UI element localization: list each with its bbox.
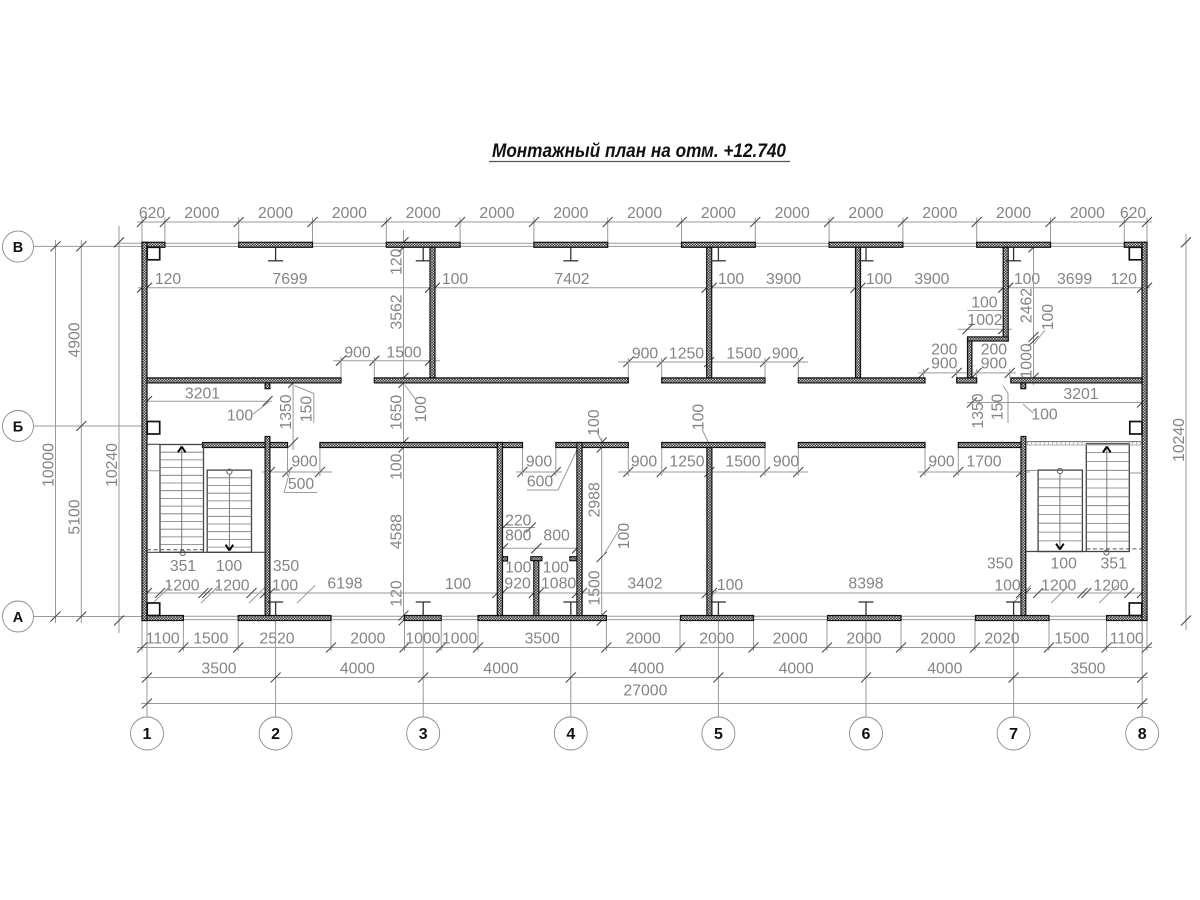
svg-text:2000: 2000 xyxy=(553,205,588,222)
svg-text:900: 900 xyxy=(931,356,958,373)
svg-text:10240: 10240 xyxy=(104,443,121,487)
svg-text:8: 8 xyxy=(1138,726,1147,743)
svg-text:351: 351 xyxy=(170,558,197,575)
svg-text:4: 4 xyxy=(566,726,575,743)
svg-text:2000: 2000 xyxy=(846,631,881,648)
svg-text:100: 100 xyxy=(442,271,469,288)
svg-text:2988: 2988 xyxy=(587,482,604,517)
svg-text:150: 150 xyxy=(299,396,316,423)
svg-text:4000: 4000 xyxy=(483,661,518,678)
svg-text:900: 900 xyxy=(773,454,800,471)
svg-text:А: А xyxy=(13,610,24,626)
svg-text:4900: 4900 xyxy=(66,322,83,357)
svg-text:100: 100 xyxy=(718,271,745,288)
svg-text:2000: 2000 xyxy=(479,205,514,222)
svg-text:2000: 2000 xyxy=(1070,205,1105,222)
svg-text:1250: 1250 xyxy=(669,346,704,363)
svg-text:1350: 1350 xyxy=(970,393,987,428)
svg-text:3201: 3201 xyxy=(185,386,220,403)
svg-text:900: 900 xyxy=(981,356,1008,373)
svg-text:500: 500 xyxy=(288,476,315,493)
svg-text:2000: 2000 xyxy=(406,205,441,222)
svg-text:2000: 2000 xyxy=(699,631,734,648)
svg-text:2000: 2000 xyxy=(350,631,385,648)
svg-text:100: 100 xyxy=(1031,407,1058,424)
svg-text:900: 900 xyxy=(632,346,659,363)
svg-text:900: 900 xyxy=(928,454,955,471)
svg-text:3: 3 xyxy=(419,726,428,743)
svg-text:900: 900 xyxy=(772,346,799,363)
svg-text:1500: 1500 xyxy=(1054,631,1089,648)
svg-text:800: 800 xyxy=(505,528,532,545)
svg-text:1500: 1500 xyxy=(386,345,421,362)
svg-text:100: 100 xyxy=(505,560,532,577)
svg-text:600: 600 xyxy=(527,474,554,491)
svg-text:2020: 2020 xyxy=(984,631,1019,648)
svg-text:900: 900 xyxy=(344,345,371,362)
svg-text:4000: 4000 xyxy=(340,661,375,678)
svg-text:120: 120 xyxy=(389,248,406,275)
svg-text:3500: 3500 xyxy=(1070,661,1105,678)
svg-text:4588: 4588 xyxy=(389,514,406,549)
svg-text:2000: 2000 xyxy=(184,205,219,222)
svg-text:1200: 1200 xyxy=(1041,578,1076,595)
svg-text:1200: 1200 xyxy=(214,578,249,595)
svg-text:10000: 10000 xyxy=(41,443,58,487)
svg-text:100: 100 xyxy=(216,558,243,575)
svg-text:900: 900 xyxy=(526,454,553,471)
svg-text:1500: 1500 xyxy=(193,631,228,648)
svg-text:7699: 7699 xyxy=(272,271,307,288)
svg-text:120: 120 xyxy=(1111,271,1138,288)
svg-text:2000: 2000 xyxy=(626,631,661,648)
svg-text:1700: 1700 xyxy=(966,454,1001,471)
svg-text:100: 100 xyxy=(971,295,998,312)
svg-text:2000: 2000 xyxy=(773,631,808,648)
svg-text:6: 6 xyxy=(862,726,871,743)
svg-text:1250: 1250 xyxy=(669,454,704,471)
svg-text:2462: 2462 xyxy=(1019,288,1036,323)
svg-text:100: 100 xyxy=(1014,271,1041,288)
svg-text:2000: 2000 xyxy=(258,205,293,222)
svg-text:150: 150 xyxy=(990,394,1007,421)
svg-text:3699: 3699 xyxy=(1057,271,1092,288)
svg-text:100: 100 xyxy=(1040,304,1057,331)
svg-text:2520: 2520 xyxy=(259,631,294,648)
svg-text:3900: 3900 xyxy=(766,271,801,288)
svg-text:27000: 27000 xyxy=(623,683,667,700)
svg-text:7402: 7402 xyxy=(554,271,589,288)
svg-text:350: 350 xyxy=(987,556,1014,573)
svg-text:2000: 2000 xyxy=(996,205,1031,222)
svg-text:100: 100 xyxy=(866,271,893,288)
svg-text:1002: 1002 xyxy=(967,312,1002,329)
svg-text:1100: 1100 xyxy=(1110,631,1144,648)
svg-text:3900: 3900 xyxy=(914,271,949,288)
svg-text:100: 100 xyxy=(272,578,299,595)
svg-text:900: 900 xyxy=(291,454,318,471)
svg-text:100: 100 xyxy=(586,409,603,436)
svg-text:920: 920 xyxy=(504,576,531,593)
svg-text:1080: 1080 xyxy=(541,576,576,593)
svg-text:4000: 4000 xyxy=(779,661,814,678)
svg-text:10240: 10240 xyxy=(1171,418,1188,462)
svg-text:100: 100 xyxy=(445,576,472,593)
svg-text:1200: 1200 xyxy=(1093,578,1128,595)
svg-text:2000: 2000 xyxy=(701,205,736,222)
svg-text:900: 900 xyxy=(631,454,658,471)
svg-text:3562: 3562 xyxy=(389,294,406,329)
svg-text:2000: 2000 xyxy=(922,205,957,222)
svg-text:1500: 1500 xyxy=(587,570,604,605)
svg-text:1350: 1350 xyxy=(278,394,295,429)
svg-text:5: 5 xyxy=(714,726,723,743)
svg-text:1000: 1000 xyxy=(405,631,440,648)
svg-text:3402: 3402 xyxy=(627,576,662,593)
svg-text:1500: 1500 xyxy=(725,454,760,471)
svg-text:3201: 3201 xyxy=(1063,386,1098,403)
svg-text:4000: 4000 xyxy=(927,661,962,678)
svg-text:3500: 3500 xyxy=(201,661,236,678)
svg-text:1650: 1650 xyxy=(389,395,406,430)
svg-text:100: 100 xyxy=(691,404,708,431)
svg-text:1: 1 xyxy=(143,726,152,743)
svg-text:2000: 2000 xyxy=(848,205,883,222)
svg-text:100: 100 xyxy=(227,408,254,425)
svg-text:100: 100 xyxy=(616,523,633,550)
svg-text:3500: 3500 xyxy=(525,631,560,648)
svg-text:350: 350 xyxy=(273,558,300,575)
svg-text:620: 620 xyxy=(1120,205,1147,222)
svg-text:1500: 1500 xyxy=(726,346,761,363)
svg-text:1000: 1000 xyxy=(442,631,477,648)
svg-text:351: 351 xyxy=(1101,556,1128,573)
svg-text:1000: 1000 xyxy=(1019,343,1036,378)
svg-text:100: 100 xyxy=(717,577,744,594)
svg-text:1200: 1200 xyxy=(164,578,199,595)
svg-text:В: В xyxy=(13,240,23,256)
svg-text:4000: 4000 xyxy=(629,661,664,678)
svg-text:2000: 2000 xyxy=(332,205,367,222)
svg-text:Б: Б xyxy=(13,420,23,436)
svg-text:100: 100 xyxy=(543,560,570,577)
svg-text:100: 100 xyxy=(994,578,1021,595)
svg-text:620: 620 xyxy=(139,205,166,222)
svg-text:5100: 5100 xyxy=(66,499,83,534)
svg-text:100: 100 xyxy=(1051,556,1078,573)
svg-text:7: 7 xyxy=(1009,726,1018,743)
svg-text:6198: 6198 xyxy=(327,576,362,593)
svg-text:2000: 2000 xyxy=(920,631,955,648)
svg-text:100: 100 xyxy=(389,453,406,480)
svg-text:2000: 2000 xyxy=(627,205,662,222)
svg-text:1100: 1100 xyxy=(146,631,180,648)
svg-text:2: 2 xyxy=(271,726,280,743)
svg-text:Монтажный план на отм. +12.740: Монтажный план на отм. +12.740 xyxy=(492,140,786,162)
svg-text:8398: 8398 xyxy=(848,576,883,593)
svg-text:2000: 2000 xyxy=(775,205,810,222)
svg-text:120: 120 xyxy=(155,271,182,288)
svg-text:800: 800 xyxy=(543,528,570,545)
